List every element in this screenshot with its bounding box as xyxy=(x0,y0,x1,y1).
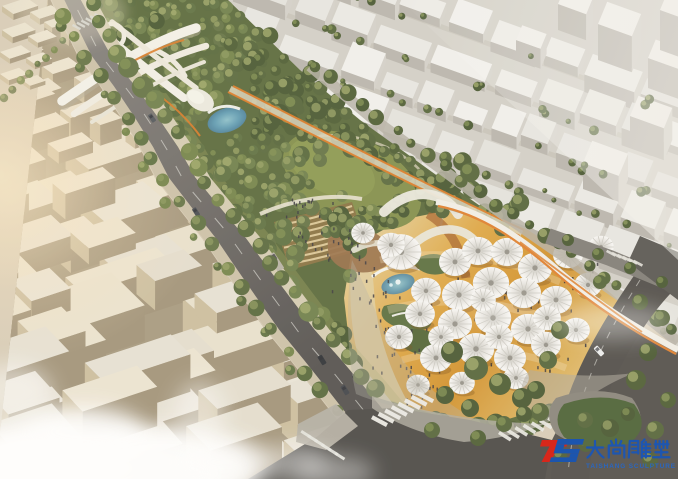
svg-text:TAISHANG SCULPTURE: TAISHANG SCULPTURE xyxy=(586,463,676,470)
